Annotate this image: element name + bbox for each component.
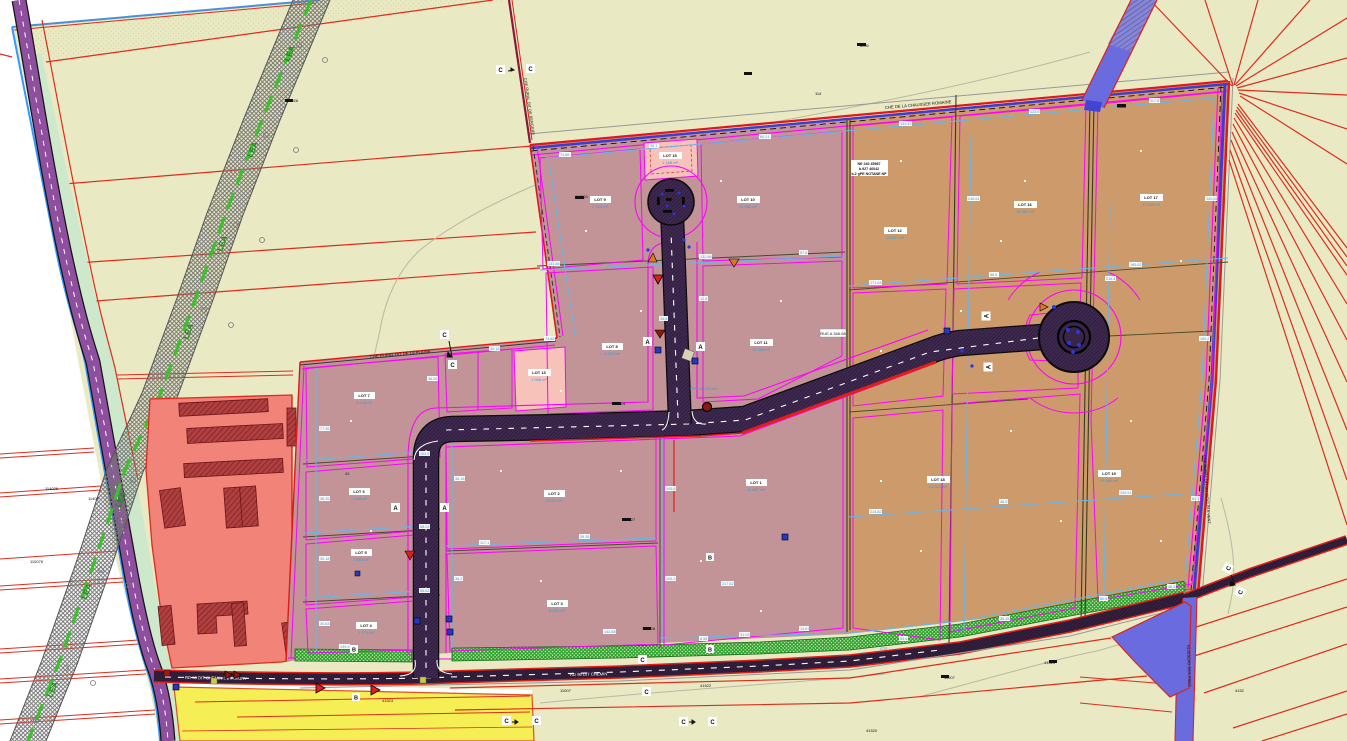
svg-text:88.6: 88.6	[990, 273, 997, 277]
svg-text:36.06: 36.06	[428, 377, 438, 381]
svg-text:GTE: GTE	[955, 628, 963, 632]
svg-text:117.1: 117.1	[480, 541, 489, 545]
svg-text:36.18: 36.18	[455, 477, 465, 481]
svg-text:B: B	[354, 696, 358, 702]
svg-text:C: C	[450, 363, 455, 369]
svg-text:2 553 m²: 2 553 m²	[592, 204, 608, 209]
svg-text:103.9: 103.9	[420, 452, 430, 456]
svg-text:5 541 m²: 5 541 m²	[546, 498, 562, 503]
svg-text:74.65: 74.65	[545, 337, 555, 341]
svg-text:3 128 m²: 3 128 m²	[356, 400, 372, 405]
svg-text:PRV 346.08 NIV: PRV 346.08 NIV	[690, 387, 718, 391]
svg-text:RUE A 346.08: RUE A 346.08	[820, 331, 846, 336]
svg-text:11 368 m²: 11 368 m²	[752, 347, 770, 352]
svg-text:217.62: 217.62	[722, 582, 734, 586]
svg-text:LOT 3: LOT 3	[551, 601, 563, 606]
svg-text:C: C	[498, 68, 503, 74]
svg-text:LOT 5: LOT 5	[355, 550, 367, 555]
svg-text:38.35: 38.35	[1000, 617, 1010, 621]
svg-text:GTE: GTE	[1050, 607, 1058, 611]
svg-text:139.9: 139.9	[340, 645, 350, 649]
svg-text:2 887 m²: 2 887 m²	[604, 351, 620, 356]
svg-text:RD 96 DIT CHEMIN: RD 96 DIT CHEMIN	[570, 671, 607, 677]
svg-text:11 467 m²: 11 467 m²	[747, 487, 765, 492]
svg-text:125.6: 125.6	[1030, 110, 1040, 114]
svg-text:1 980 m²: 1 980 m²	[353, 557, 369, 562]
svg-text:LOT 6: LOT 6	[353, 489, 365, 494]
svg-text:8.56: 8.56	[700, 637, 707, 641]
svg-text:C: C	[710, 720, 715, 726]
svg-text:41520: 41520	[866, 728, 878, 733]
svg-text:110076: 110076	[30, 559, 44, 564]
svg-text:31.03: 31.03	[740, 633, 750, 637]
svg-text:77.35: 77.35	[320, 427, 330, 431]
svg-text:1 188 m²: 1 188 m²	[662, 160, 678, 165]
svg-text:5 002 m²: 5 002 m²	[549, 608, 565, 613]
svg-text:A: A	[987, 364, 993, 369]
svg-text:246.61: 246.61	[968, 197, 980, 201]
svg-text:LOT 7: LOT 7	[358, 393, 370, 398]
svg-text:B: B	[708, 556, 712, 562]
svg-text:105.2: 105.2	[666, 577, 676, 581]
svg-text:LOT 9: LOT 9	[594, 197, 606, 202]
svg-text:21 812 m²: 21 812 m²	[929, 484, 948, 489]
svg-text:C: C	[681, 720, 686, 726]
svg-text:80.21: 80.21	[760, 135, 770, 139]
svg-text:41523: 41523	[382, 698, 394, 703]
svg-text:A: A	[645, 340, 650, 346]
svg-text:132.86: 132.86	[700, 255, 712, 259]
svg-text:LOT 1: LOT 1	[750, 480, 762, 485]
svg-text:b.927 46042: b.927 46042	[859, 167, 879, 171]
svg-text:83.3: 83.3	[1192, 497, 1199, 501]
svg-text:74.85: 74.85	[560, 153, 570, 157]
svg-text:b.2 gPE NOTANE NP: b.2 gPE NOTANE NP	[851, 172, 887, 176]
svg-text:1 008 m²: 1 008 m²	[531, 377, 547, 382]
svg-text:216.4: 216.4	[1106, 277, 1116, 281]
svg-text:114: 114	[815, 91, 822, 96]
svg-text:B: B	[708, 648, 712, 654]
svg-text:35.6: 35.6	[660, 317, 667, 321]
svg-text:LOT 10: LOT 10	[741, 197, 755, 202]
svg-text:A: A	[442, 506, 447, 512]
svg-text:LOT 18: LOT 18	[931, 477, 945, 482]
svg-text:1 774 m²: 1 774 m²	[358, 630, 374, 635]
svg-text:142.88: 142.88	[604, 630, 616, 634]
svg-text:12 000 m²: 12 000 m²	[739, 204, 758, 209]
svg-text:39.35: 39.35	[580, 535, 590, 539]
svg-text:C: C	[534, 719, 539, 725]
svg-text:LOT 15: LOT 15	[663, 153, 677, 158]
svg-text:30.18: 30.18	[320, 557, 330, 561]
svg-text:GTE: GTE	[880, 647, 888, 651]
svg-text:4152: 4152	[1235, 688, 1245, 693]
svg-text:LOT 13: LOT 13	[532, 370, 546, 375]
svg-text:30.18: 30.18	[490, 347, 500, 351]
svg-text:171.64: 171.64	[870, 281, 882, 285]
svg-text:165.62: 165.62	[1130, 263, 1142, 267]
svg-text:LOT 2: LOT 2	[548, 491, 560, 496]
svg-text:2 168 m²: 2 168 m²	[351, 496, 367, 501]
svg-text:39.1: 39.1	[650, 144, 657, 148]
svg-text:46.3: 46.3	[1168, 585, 1175, 589]
svg-text:41: 41	[345, 471, 350, 476]
svg-text:109.51: 109.51	[1120, 491, 1132, 495]
svg-text:131.86: 131.86	[548, 262, 560, 266]
svg-text:C: C	[504, 719, 509, 725]
svg-text:56.62: 56.62	[420, 589, 430, 593]
svg-text:48.9: 48.9	[1000, 500, 1007, 504]
svg-text:LOT 8: LOT 8	[606, 344, 618, 349]
svg-text:114026: 114026	[45, 486, 59, 491]
svg-text:17 943 m²: 17 943 m²	[1142, 202, 1161, 207]
svg-text:36.2: 36.2	[455, 577, 462, 581]
svg-text:A: A	[393, 506, 398, 512]
svg-text:57.6: 57.6	[800, 251, 807, 255]
svg-text:LOT 19: LOT 19	[1102, 471, 1116, 476]
svg-text:160.2: 160.2	[1200, 337, 1210, 341]
svg-text:C: C	[640, 658, 645, 664]
svg-text:41522: 41522	[700, 683, 712, 688]
svg-text:19 584 m²: 19 584 m²	[1100, 478, 1119, 483]
svg-text:12.8: 12.8	[700, 297, 707, 301]
svg-text:13.67: 13.67	[800, 627, 810, 631]
svg-text:LOT 17: LOT 17	[1144, 195, 1158, 200]
svg-text:38.35: 38.35	[320, 497, 330, 501]
svg-text:A: A	[985, 313, 991, 318]
svg-text:140.62: 140.62	[1206, 197, 1218, 201]
svg-text:58.01: 58.01	[420, 525, 430, 529]
svg-text:105.6: 105.6	[666, 487, 676, 491]
svg-text:214.82: 214.82	[870, 510, 882, 514]
svg-text:C: C	[442, 333, 447, 339]
svg-text:153.42: 153.42	[900, 122, 912, 126]
svg-text:A: A	[698, 345, 703, 351]
svg-text:11007: 11007	[560, 688, 572, 693]
svg-text:LOT 12: LOT 12	[888, 228, 902, 233]
svg-text:11402: 11402	[88, 496, 100, 501]
svg-text:C: C	[644, 690, 649, 696]
svg-text:23 227 m²: 23 227 m²	[886, 235, 905, 240]
svg-text:NE 240 45987: NE 240 45987	[858, 162, 881, 166]
svg-text:LOT 16: LOT 16	[1018, 202, 1032, 207]
svg-text:117.8: 117.8	[1150, 99, 1159, 103]
svg-text:LOT 4: LOT 4	[360, 623, 372, 628]
svg-text:B: B	[352, 648, 356, 654]
svg-text:55.6: 55.6	[900, 637, 907, 641]
svg-text:C: C	[528, 67, 533, 73]
svg-text:30.63: 30.63	[320, 622, 330, 626]
svg-text:18 002 m²: 18 002 m²	[1016, 209, 1035, 214]
svg-text:80.8: 80.8	[1100, 597, 1107, 601]
svg-text:LOT 11: LOT 11	[754, 340, 768, 345]
